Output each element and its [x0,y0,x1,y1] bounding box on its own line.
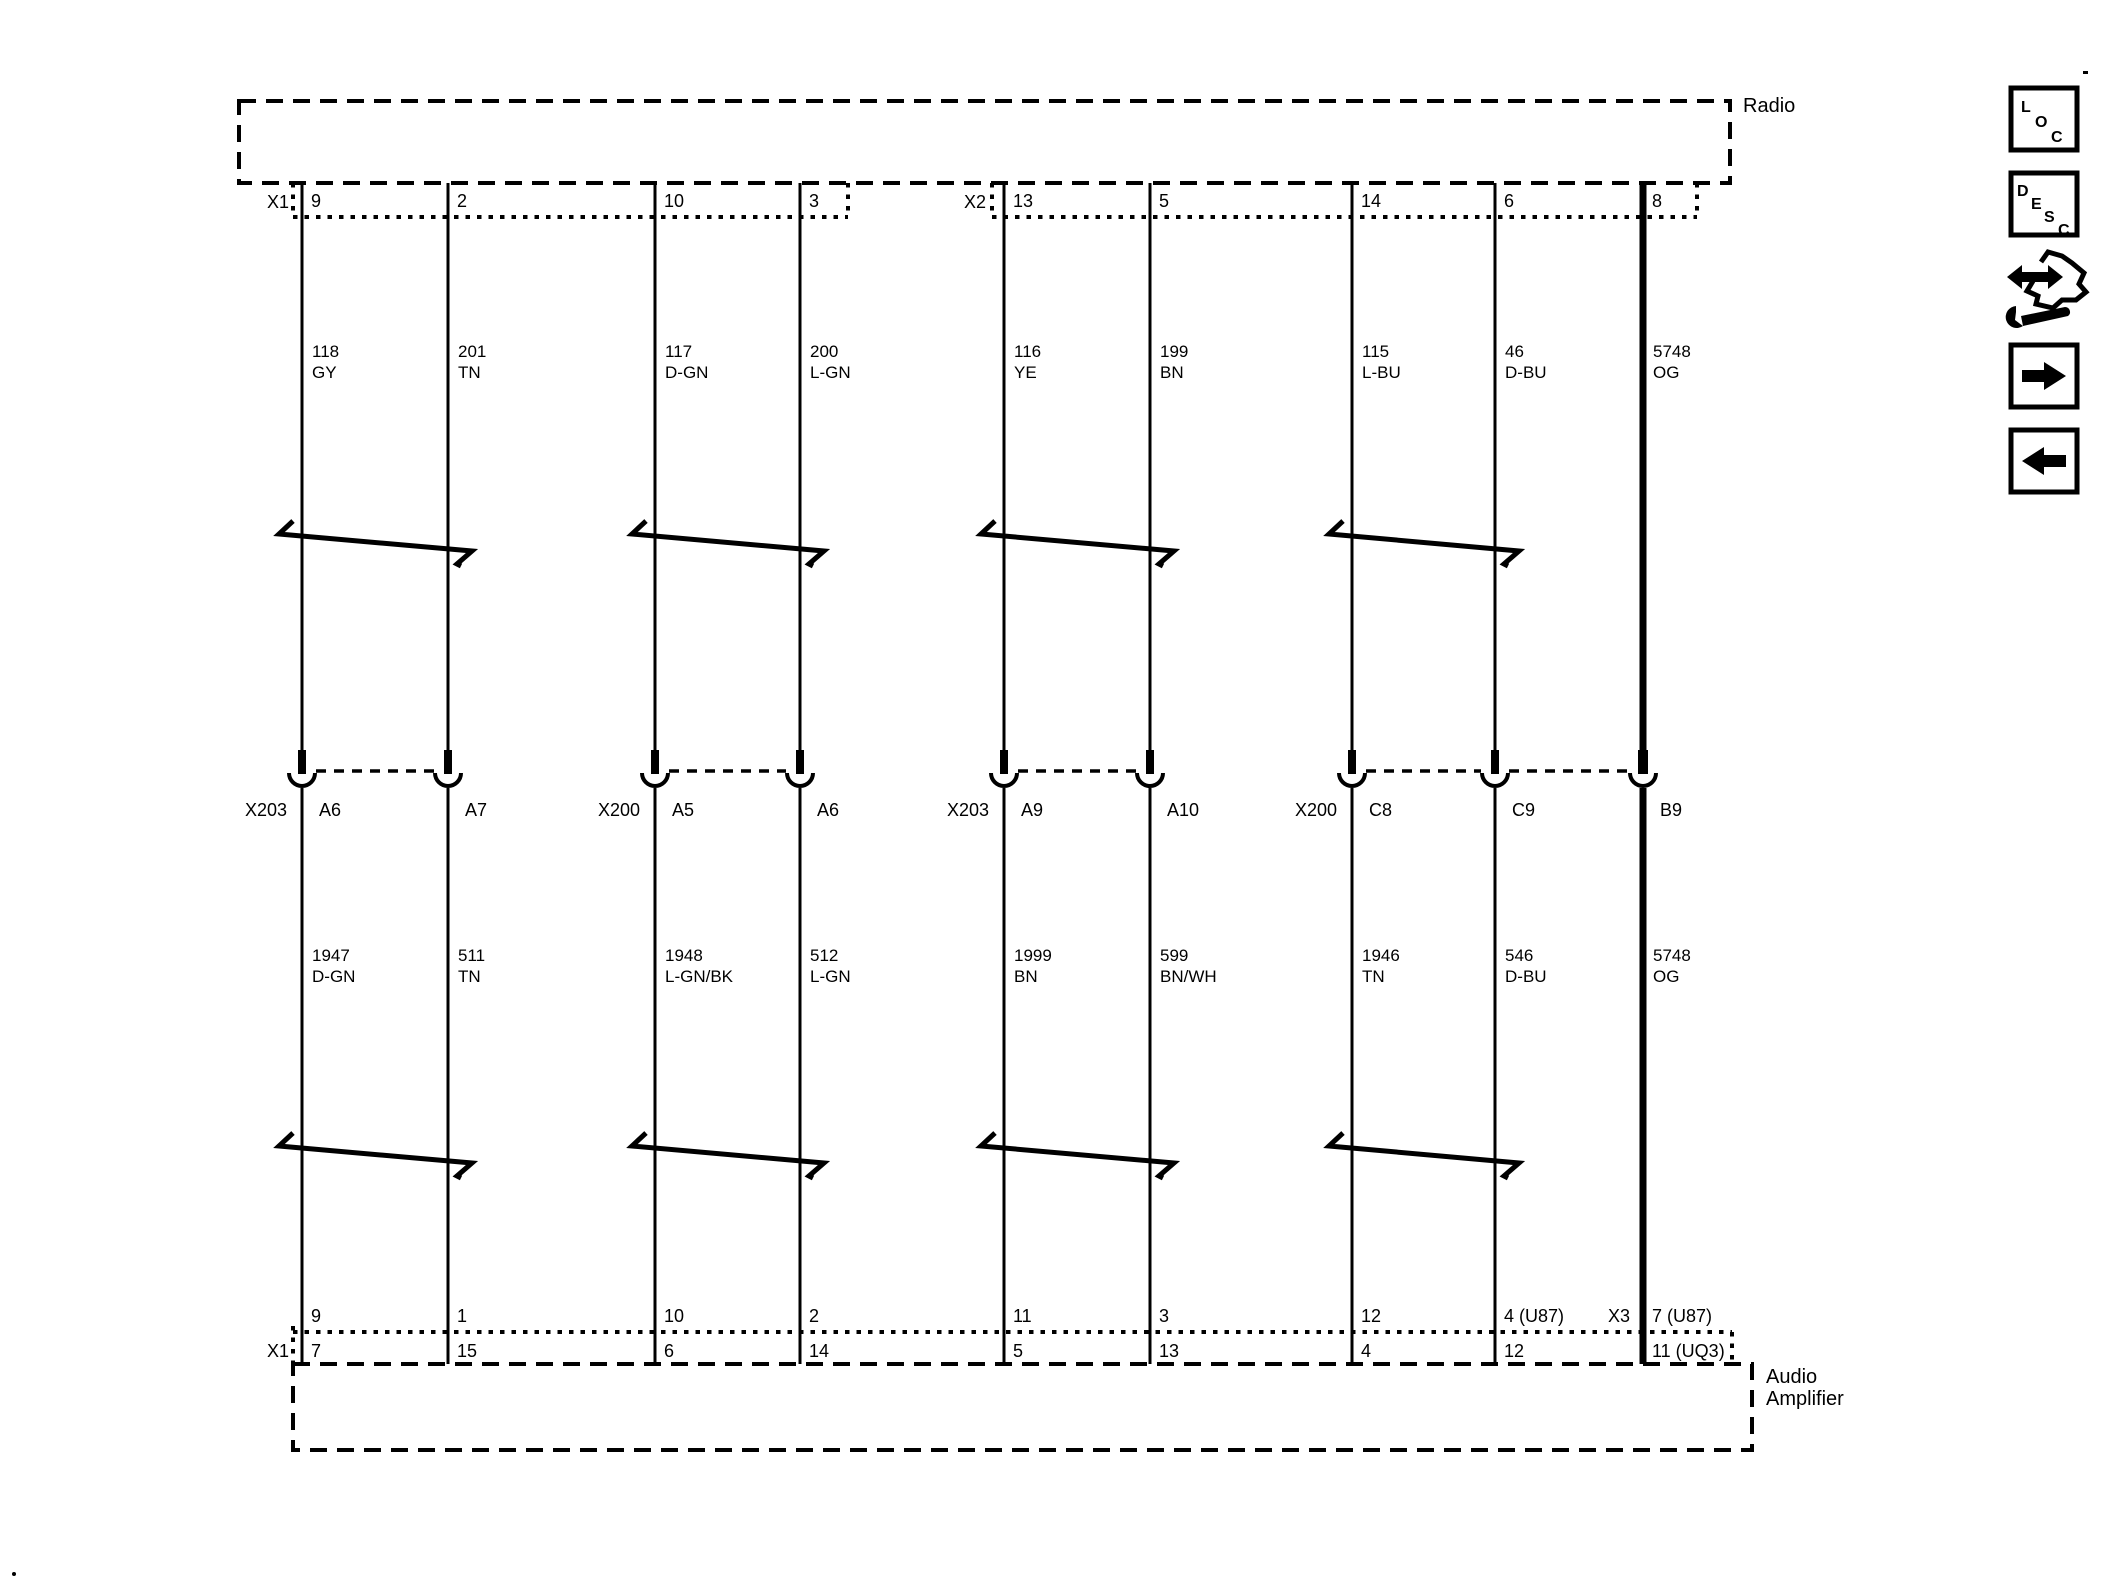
wire-color-label-7: L-BU [1362,363,1401,382]
lower-wire-color-label-9: OG [1653,967,1679,986]
lower-wire-id-label-8: 546 [1505,946,1533,965]
desc-button[interactable]: D E S C [2011,173,2077,239]
desc-letter-c: C [2058,222,2070,239]
twisted-pair-symbol-4-lower [1329,1133,1519,1178]
desc-letter-d: D [2017,183,2029,200]
amp-pin-bottom-label-9: 11 (UQ3) [1652,1341,1725,1361]
amp-pin-bottom-label-5: 5 [1013,1341,1023,1361]
wire-id-label-6: 199 [1160,342,1188,361]
wire-id-label-8: 46 [1505,342,1524,361]
wire-id-label-9: 5748 [1653,342,1691,361]
radio-pin-label-6: 5 [1159,191,1169,211]
radio-pin-label-5: 13 [1013,191,1033,211]
page-speck-top-right [2083,71,2088,74]
twisted-pair-symbol-4-upper [1329,521,1519,566]
wiring-diagram-page: Radio X1 X2 9 2 10 [0,0,2124,1593]
wire-color-label-8: D-BU [1505,363,1547,382]
inline-terminal-cup-3 [642,773,668,786]
wire-color-label-1: GY [312,363,337,382]
amp-pin-bottom-label-2: 15 [457,1341,477,1361]
radio-pin-label-2: 2 [457,191,467,211]
amplifier-label-line1: Audio [1766,1366,1817,1388]
inline-terminal-cup-7 [1339,773,1365,786]
wire-color-label-2: TN [458,363,481,382]
amp-pin-top-label-2: 1 [457,1306,467,1326]
wire-id-label-4: 200 [810,342,838,361]
inline-pin-label-3: A5 [672,800,694,820]
inline-connector-name-3: X203 [947,800,989,820]
connector-x1-bottom-label: X1 [267,1341,289,1361]
inline-terminal-cup-2 [435,773,461,786]
twisted-pair-symbol-3-upper [981,521,1174,566]
desc-letter-e: E [2031,196,2042,213]
amp-pin-bottom-label-8: 12 [1504,1341,1524,1361]
radio-pin-label-8: 6 [1504,191,1514,211]
radio-outline [239,101,1730,183]
inline-terminal-cup-1 [289,773,315,786]
lower-wire-color-label-8: D-BU [1505,967,1547,986]
lower-wire-id-label-6: 599 [1160,946,1188,965]
lower-wire-id-label-9: 5748 [1653,946,1691,965]
inline-connector-name-4: X200 [1295,800,1337,820]
loc-button[interactable]: L O C [2011,88,2077,150]
lower-wire-id-label-2: 511 [458,946,485,965]
connector-x3-bottom-label: X3 [1608,1306,1630,1326]
wire-id-label-7: 115 [1362,342,1389,361]
page-speck-bottom-left [12,1572,16,1576]
twisted-pair-symbol-1-lower [279,1133,472,1178]
amp-pin-bottom-label-6: 13 [1159,1341,1179,1361]
radio-pin-label-1: 9 [311,191,321,211]
inline-terminal-cup-8 [1482,773,1508,786]
twisted-pair-symbol-2-lower [632,1133,824,1178]
amp-pin-top-label-3: 10 [664,1306,684,1326]
inline-pin-label-4: A6 [817,800,839,820]
inline-pin-label-8: C9 [1512,800,1535,820]
amp-pin-bottom-label-4: 14 [809,1341,829,1361]
wire-id-label-1: 118 [312,342,339,361]
amp-pin-top-label-9: 7 (U87) [1652,1306,1712,1326]
amp-pin-top-label-6: 3 [1159,1306,1169,1326]
wrench-icon [2006,306,2070,328]
radio-label: Radio [1743,95,1795,117]
lower-wire-id-label-4: 512 [810,946,838,965]
double-arrow-icon [2007,265,2063,289]
lower-wire-id-label-7: 1946 [1362,946,1400,965]
amp-pin-top-label-7: 12 [1361,1306,1381,1326]
connector-x1-top-label: X1 [267,192,289,212]
inline-terminal-cup-9 [1630,773,1656,786]
amplifier-outline [293,1364,1752,1450]
amp-pin-top-label-4: 2 [809,1306,819,1326]
lower-wire-id-label-1: 1947 [312,946,350,965]
radio-pin-label-4: 3 [809,191,819,211]
amp-pin-top-label-8: 4 (U87) [1504,1306,1564,1326]
inline-pin-label-9: B9 [1660,800,1682,820]
lower-wire-color-label-5: BN [1014,967,1038,986]
amp-pin-bottom-label-1: 7 [311,1341,321,1361]
amp-pin-bottom-label-3: 6 [664,1341,674,1361]
twisted-pair-symbol-3-lower [981,1133,1174,1178]
inline-terminal-cup-4 [787,773,813,786]
lower-wire-color-label-1: D-GN [312,967,355,986]
wire-color-label-4: L-GN [810,363,851,382]
twisted-pair-symbol-1-upper [279,521,472,566]
lower-wire-color-label-7: TN [1362,967,1385,986]
back-arrow-button[interactable] [2011,430,2077,492]
radio-pin-label-7: 14 [1361,191,1381,211]
twisted-pair-symbol-2-upper [632,521,824,566]
inline-pin-label-1: A6 [319,800,341,820]
wire-color-label-3: D-GN [665,363,708,382]
inline-terminal-cup-5 [991,773,1017,786]
wire-color-label-5: YE [1014,363,1037,382]
wire-color-label-9: OG [1653,363,1679,382]
radio-pin-label-3: 10 [664,191,684,211]
radio-pin-label-9: 8 [1652,191,1662,211]
wire-color-label-6: BN [1160,363,1184,382]
connector-x2-top-label: X2 [964,192,986,212]
inline-terminal-cup-6 [1137,773,1163,786]
inline-pin-label-6: A10 [1167,800,1199,820]
inline-connector-name-1: X203 [245,800,287,820]
lower-wire-id-label-3: 1948 [665,946,703,965]
amp-pin-top-label-1: 9 [311,1306,321,1326]
forward-arrow-button[interactable] [2011,345,2077,407]
inline-connector-name-2: X200 [598,800,640,820]
wire-id-label-3: 117 [665,342,692,361]
loc-letter-o: O [2035,114,2047,131]
desc-letter-s: S [2044,209,2055,226]
lower-wire-color-label-3: L-GN/BK [665,967,734,986]
inline-pin-label-5: A9 [1021,800,1043,820]
jump-tool-icon[interactable] [2006,252,2086,328]
lower-wire-color-label-4: L-GN [810,967,851,986]
lower-wire-id-label-5: 1999 [1014,946,1052,965]
lower-wire-color-label-2: TN [458,967,481,986]
inline-pin-label-7: C8 [1369,800,1392,820]
loc-letter-c: C [2051,129,2063,146]
amplifier-label-line2: Amplifier [1766,1388,1844,1410]
amp-pin-bottom-label-7: 4 [1361,1341,1371,1361]
loc-letter-l: L [2021,99,2031,116]
lower-wire-color-label-6: BN/WH [1160,967,1217,986]
inline-pin-label-2: A7 [465,800,487,820]
wire-id-label-2: 201 [458,342,486,361]
wire-id-label-5: 116 [1014,342,1041,361]
amp-pin-top-label-5: 11 [1013,1306,1032,1326]
